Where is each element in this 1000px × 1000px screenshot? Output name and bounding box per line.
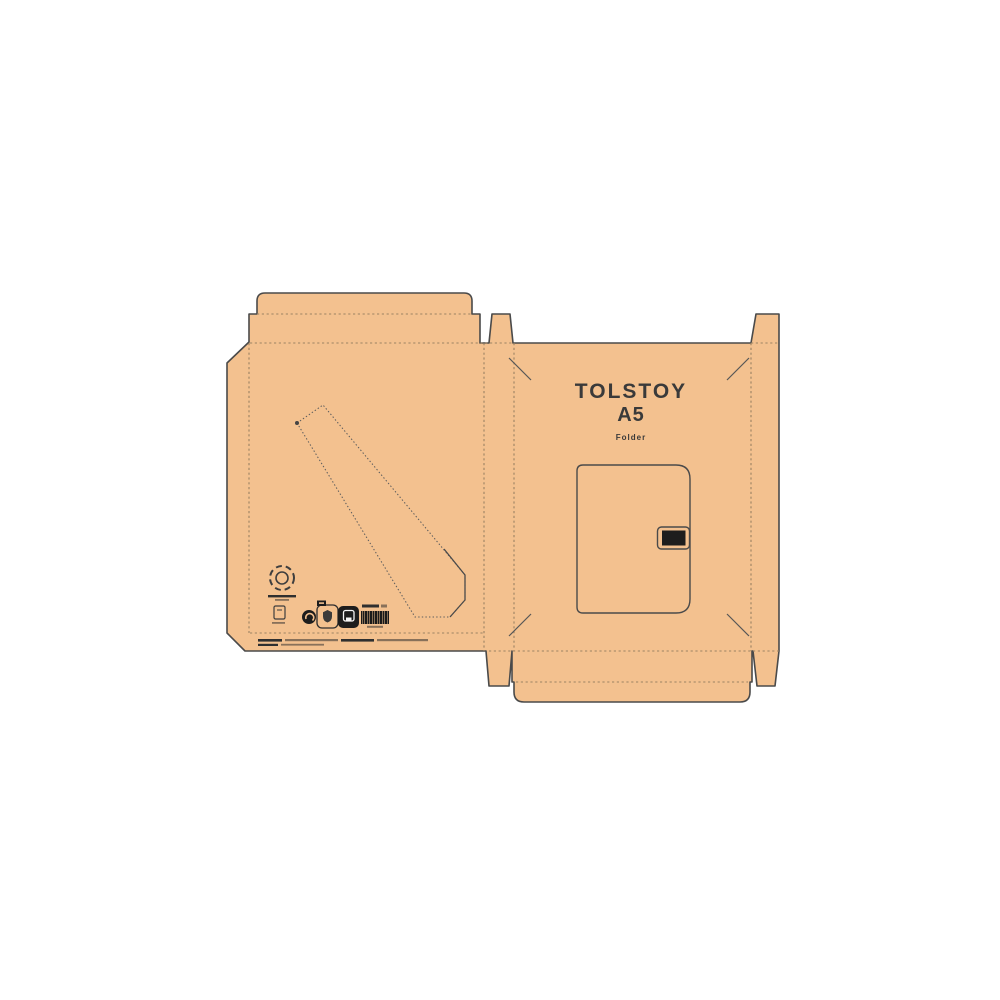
size-title: A5	[556, 405, 706, 425]
pocket-anchor-dot	[295, 421, 299, 425]
product-label: Folder	[556, 433, 706, 442]
dieline-drawing	[0, 0, 1000, 1000]
brand-title: TOLSTOY	[556, 381, 706, 402]
green-dot-icon	[302, 610, 316, 624]
folder-clasp-button	[662, 531, 686, 546]
dieline-canvas: TOLSTOY A5 Folder	[0, 0, 1000, 1000]
barcode-bars	[361, 611, 389, 624]
disposal-box-icon	[338, 606, 359, 628]
material-code-chip	[317, 601, 326, 607]
